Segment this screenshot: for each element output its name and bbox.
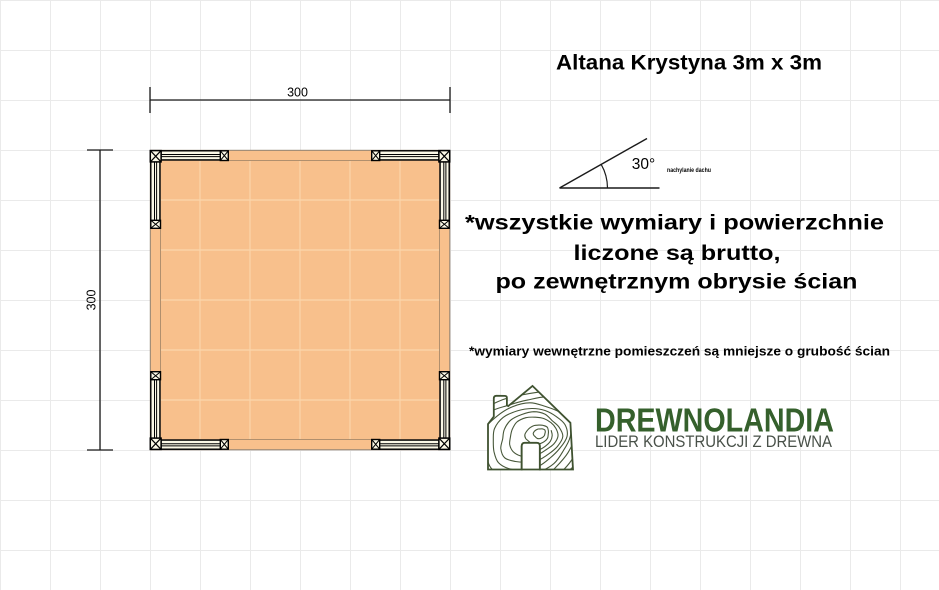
svg-text:nachylanie dachu: nachylanie dachu — [667, 167, 711, 174]
svg-text:300: 300 — [85, 290, 99, 311]
svg-text:*wymiary wewnętrzne pomieszcze: *wymiary wewnętrzne pomieszczeń są mniej… — [469, 344, 890, 359]
svg-text:300: 300 — [287, 86, 308, 100]
svg-text:po zewnętrznym obrysie ścian: po zewnętrznym obrysie ścian — [496, 270, 858, 294]
svg-text:*wszystkie wymiary i powierzch: *wszystkie wymiary i powierzchnie — [465, 211, 884, 235]
svg-text:LIDER KONSTRUKCJI Z DREWNA: LIDER KONSTRUKCJI Z DREWNA — [595, 432, 833, 451]
svg-text:Altana Krystyna 3m x 3m: Altana Krystyna 3m x 3m — [556, 52, 822, 75]
svg-text:30°: 30° — [632, 156, 655, 173]
svg-text:liczone są brutto,: liczone są brutto, — [574, 241, 781, 265]
